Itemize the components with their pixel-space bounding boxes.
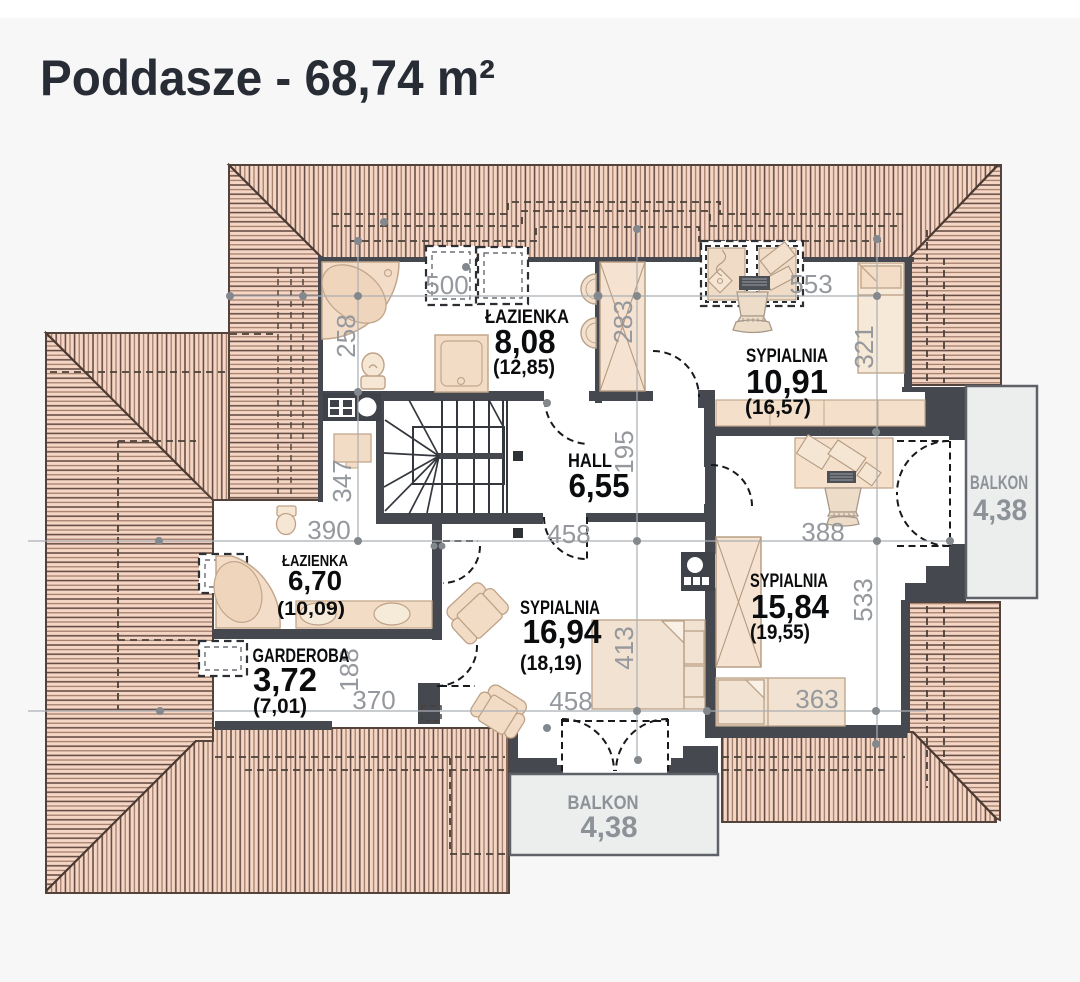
- svg-text:(12,85): (12,85): [493, 356, 555, 379]
- svg-text:(10,09): (10,09): [277, 599, 345, 620]
- svg-text:BALKON: BALKON: [970, 473, 1028, 494]
- svg-text:283: 283: [608, 300, 638, 343]
- svg-text:458: 458: [547, 519, 590, 549]
- svg-text:390: 390: [307, 515, 350, 545]
- svg-text:347: 347: [327, 459, 357, 502]
- svg-text:15,84: 15,84: [751, 588, 830, 625]
- svg-text:500: 500: [425, 270, 468, 300]
- svg-text:8,08: 8,08: [495, 323, 556, 360]
- svg-text:10,91: 10,91: [746, 363, 828, 400]
- svg-text:258: 258: [331, 314, 361, 357]
- svg-text:413: 413: [609, 626, 639, 669]
- svg-text:16,94: 16,94: [523, 613, 603, 650]
- svg-text:363: 363: [795, 684, 838, 714]
- svg-text:4,38: 4,38: [581, 811, 638, 844]
- svg-text:3,72: 3,72: [253, 661, 317, 698]
- svg-text:(18,19): (18,19): [520, 652, 582, 675]
- svg-text:(19,55): (19,55): [750, 621, 810, 644]
- svg-text:388: 388: [801, 517, 844, 547]
- svg-text:6,55: 6,55: [569, 467, 630, 504]
- svg-text:4,38: 4,38: [973, 494, 1027, 527]
- svg-text:(7,01): (7,01): [253, 695, 307, 718]
- svg-text:458: 458: [549, 686, 592, 716]
- svg-text:553: 553: [789, 269, 832, 299]
- svg-text:6,70: 6,70: [288, 565, 342, 596]
- svg-text:321: 321: [849, 325, 879, 368]
- svg-text:(16,57): (16,57): [745, 396, 811, 419]
- svg-text:533: 533: [848, 578, 878, 621]
- svg-text:Poddasze - 68,74 m²: Poddasze - 68,74 m²: [40, 50, 495, 106]
